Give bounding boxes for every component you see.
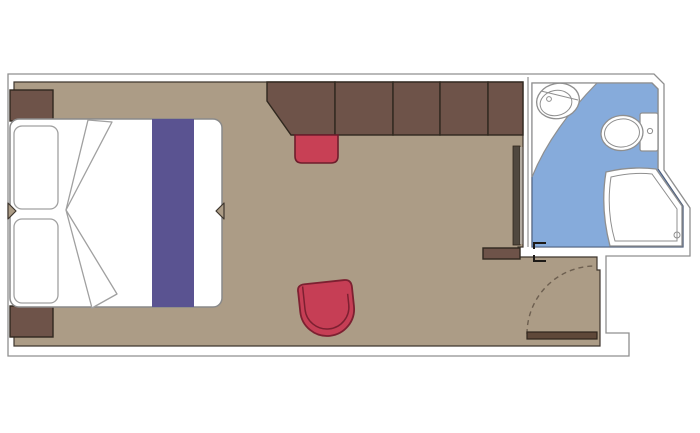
nightstand-bottom xyxy=(10,306,53,337)
pillow-bottom xyxy=(14,219,58,303)
wardrobe-section-2 xyxy=(393,82,440,135)
entry-shelf xyxy=(483,248,520,259)
wardrobe-section-4 xyxy=(488,82,523,135)
bathroom-door xyxy=(513,146,520,245)
floor-plan xyxy=(0,0,700,433)
wardrobe-units xyxy=(267,82,523,135)
entrance-door xyxy=(527,332,597,339)
floor-plan-svg xyxy=(0,0,700,433)
wardrobe-section-3 xyxy=(440,82,488,135)
wardrobe-section-1 xyxy=(335,82,393,135)
pillow-top xyxy=(14,126,58,209)
nightstand-top xyxy=(10,90,53,121)
bed-runner xyxy=(152,119,194,307)
bathroom-door-edge xyxy=(520,147,523,244)
stool xyxy=(295,135,338,163)
double-bed xyxy=(8,119,224,308)
